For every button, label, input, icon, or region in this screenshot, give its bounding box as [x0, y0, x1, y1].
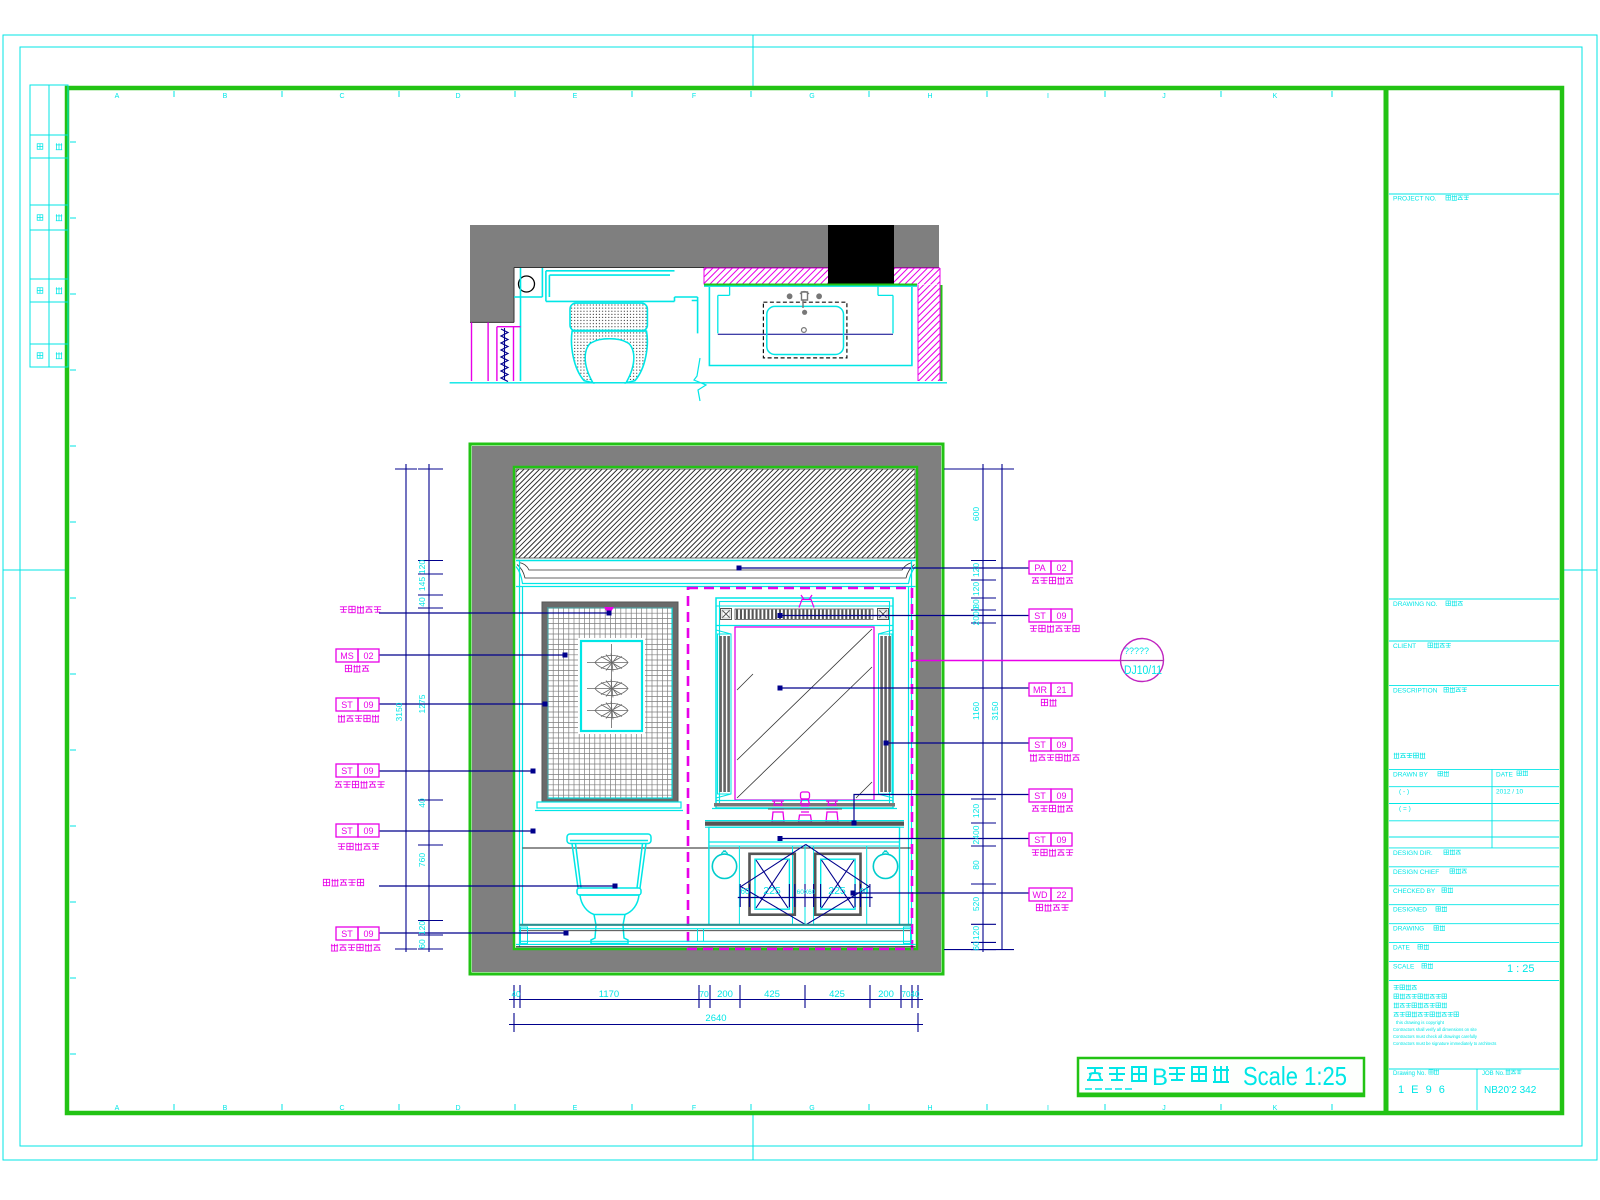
svg-text:60X60: 60X60: [797, 889, 816, 896]
svg-text:PROJECT NO.: PROJECT NO.: [1393, 196, 1437, 203]
svg-text:DESIGNED: DESIGNED: [1393, 907, 1427, 914]
svg-text:120: 120: [417, 921, 427, 935]
svg-text:J: J: [1162, 1105, 1166, 1112]
svg-text:G: G: [809, 93, 814, 100]
svg-text:K: K: [1273, 1105, 1278, 1112]
svg-text:JOB No.: JOB No.: [1482, 1071, 1505, 1077]
svg-text:A: A: [115, 93, 120, 100]
svg-text:E: E: [573, 1105, 578, 1112]
svg-text:120: 120: [417, 560, 427, 574]
svg-text:J: J: [1162, 93, 1166, 100]
svg-text:09: 09: [363, 766, 373, 776]
svg-text:DESIGN DIR.: DESIGN DIR.: [1393, 850, 1433, 857]
svg-text:21: 21: [1056, 685, 1066, 695]
svg-text:22: 22: [1056, 890, 1066, 900]
svg-text:MR: MR: [1033, 685, 1047, 695]
svg-text:ST: ST: [341, 700, 353, 710]
svg-text:145: 145: [417, 577, 427, 591]
svg-text:DRAWN BY: DRAWN BY: [1393, 771, 1428, 778]
svg-text:DRAWING: DRAWING: [1393, 926, 1424, 933]
svg-text:60: 60: [860, 887, 869, 896]
svg-text:1 : 25: 1 : 25: [1507, 963, 1535, 975]
svg-text:02: 02: [363, 651, 373, 661]
svg-text:DATE: DATE: [1496, 771, 1514, 778]
svg-text:B: B: [223, 1105, 228, 1112]
svg-text:I: I: [1047, 93, 1049, 100]
svg-text:1160: 1160: [971, 702, 981, 721]
svg-text:( - ): ( - ): [1399, 789, 1409, 796]
svg-text:2640: 2640: [705, 1013, 726, 1024]
svg-text:G: G: [809, 1105, 814, 1112]
svg-text:09: 09: [1056, 791, 1066, 801]
svg-text:DRAWING NO.: DRAWING NO.: [1393, 601, 1438, 608]
svg-text:I: I: [1047, 1105, 1049, 1112]
svg-text:ST: ST: [341, 929, 353, 939]
svg-text:ˈ: ˈ: [1506, 1086, 1508, 1094]
svg-text:ST: ST: [1034, 611, 1046, 621]
svg-text:120: 120: [971, 926, 981, 940]
svg-text:02: 02: [1056, 563, 1066, 573]
svg-text:09: 09: [363, 826, 373, 836]
svg-text:225: 225: [828, 885, 846, 897]
svg-text:Scale 1:25: Scale 1:25: [1243, 1061, 1347, 1091]
svg-text:ST: ST: [1034, 791, 1046, 801]
svg-text:70: 70: [699, 989, 709, 999]
svg-text:Contractors shall verify all d: Contractors shall verify all dimensions …: [1393, 1027, 1477, 1032]
svg-text:ST: ST: [341, 766, 353, 776]
svg-text:C: C: [339, 93, 344, 100]
svg-text:DJ10/11: DJ10/11: [1124, 665, 1162, 677]
svg-text:ST: ST: [1034, 835, 1046, 845]
svg-text:1170: 1170: [599, 989, 619, 1000]
svg-text:Drawing No.: Drawing No.: [1393, 1071, 1426, 1077]
svg-text:Contractors must check all dra: Contractors must check all drawings care…: [1393, 1034, 1478, 1039]
svg-text:F: F: [692, 1105, 696, 1112]
svg-text:2400: 2400: [971, 825, 981, 844]
svg-text:C: C: [339, 1105, 344, 1112]
svg-text:E: E: [573, 93, 578, 100]
svg-text:225: 225: [763, 885, 781, 897]
svg-text:120: 120: [971, 563, 981, 577]
svg-text:DESCRIPTION: DESCRIPTION: [1393, 688, 1438, 695]
svg-text:A: A: [115, 1105, 120, 1112]
svg-text:DESIGN CHIEF: DESIGN CHIEF: [1393, 869, 1439, 876]
svg-text:09: 09: [363, 929, 373, 939]
svg-text:H: H: [927, 1105, 932, 1112]
svg-text:1 E 9 6: 1 E 9 6: [1398, 1084, 1447, 1096]
svg-text:CHECKED BY: CHECKED BY: [1393, 888, 1436, 895]
svg-text:40: 40: [417, 597, 427, 607]
svg-text:120: 120: [971, 582, 981, 596]
svg-text:H: H: [927, 93, 932, 100]
svg-text:DATE: DATE: [1393, 945, 1411, 952]
svg-text:600: 600: [971, 507, 981, 521]
svg-text:1275: 1275: [417, 694, 427, 713]
svg-text:09: 09: [1056, 740, 1066, 750]
svg-text:this drawing is copyright: this drawing is copyright: [1396, 1020, 1445, 1025]
svg-text:?????: ?????: [1124, 646, 1149, 656]
svg-text:2000: 2000: [971, 606, 981, 625]
svg-text:( = ): ( = ): [1399, 806, 1411, 813]
svg-text:120: 120: [971, 804, 981, 818]
svg-text:200: 200: [717, 989, 733, 1000]
svg-text:520: 520: [971, 897, 981, 911]
svg-text:MS: MS: [340, 651, 354, 661]
svg-text:D: D: [455, 93, 460, 100]
svg-text:425: 425: [829, 989, 845, 1000]
svg-text:60: 60: [971, 941, 981, 951]
svg-text:K: K: [1273, 93, 1278, 100]
svg-text:40: 40: [417, 798, 427, 808]
svg-text:SCALE: SCALE: [1393, 964, 1415, 971]
svg-text:80: 80: [971, 860, 981, 870]
svg-text:NB20’2 342: NB20’2 342: [1484, 1085, 1537, 1096]
svg-text:ST: ST: [1034, 740, 1046, 750]
svg-text:D: D: [455, 1105, 460, 1112]
svg-text:2012 / 10: 2012 / 10: [1496, 789, 1523, 796]
svg-text:3150: 3150: [394, 702, 404, 721]
svg-text:WD: WD: [1033, 890, 1048, 900]
svg-text:425: 425: [764, 989, 780, 1000]
svg-text:F: F: [692, 93, 696, 100]
svg-text:B: B: [223, 93, 228, 100]
svg-text:PA: PA: [1034, 563, 1045, 573]
svg-text:09: 09: [363, 700, 373, 710]
svg-text:60: 60: [741, 887, 750, 896]
svg-text:760: 760: [417, 853, 427, 867]
svg-text:3150: 3150: [990, 701, 1000, 720]
svg-text:40: 40: [512, 990, 521, 999]
svg-text:CLIENT: CLIENT: [1393, 643, 1416, 650]
svg-text:40: 40: [911, 990, 920, 999]
svg-text:09: 09: [1056, 611, 1066, 621]
svg-text:09: 09: [1056, 835, 1066, 845]
svg-text:Contractors must be signature: Contractors must be signature immediatel…: [1393, 1041, 1496, 1046]
svg-text:200: 200: [878, 989, 894, 1000]
svg-text:B: B: [1152, 1064, 1168, 1091]
svg-text:60: 60: [417, 939, 427, 949]
svg-text:ST: ST: [341, 826, 353, 836]
